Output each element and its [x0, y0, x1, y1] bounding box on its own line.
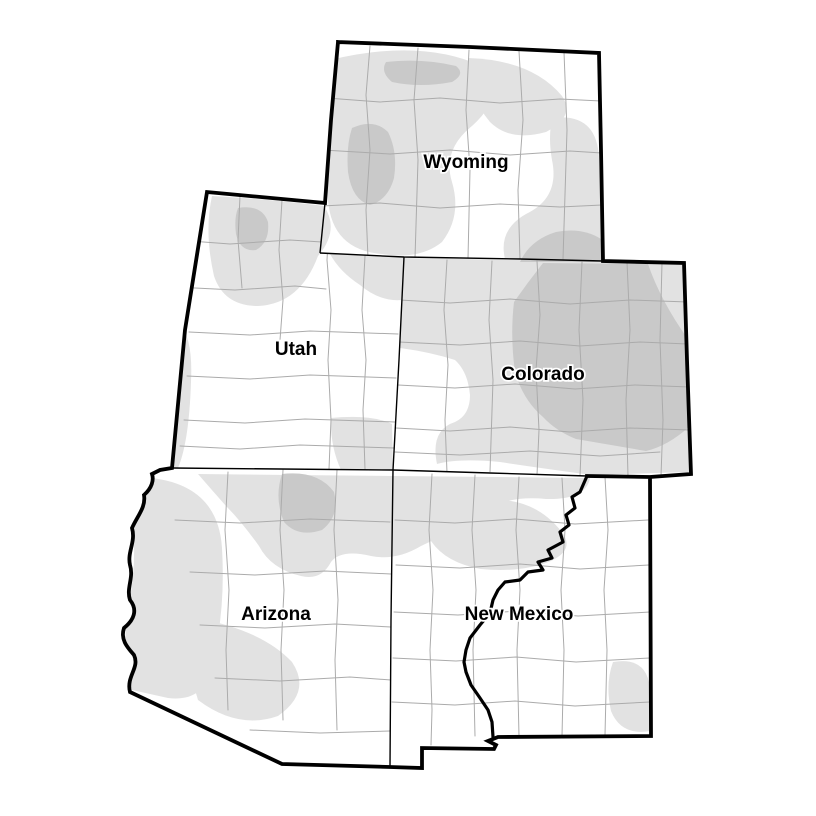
label-colorado: Colorado: [501, 364, 584, 385]
label-arizona: Arizona: [241, 604, 311, 625]
shade-southeast-newmexico: [608, 661, 650, 732]
label-new-mexico: New Mexico: [465, 604, 574, 625]
five-state-region-map: Wyoming Utah Colorado Arizona New Mexico: [0, 0, 816, 816]
label-utah: Utah: [275, 339, 317, 360]
label-wyoming: Wyoming: [423, 152, 508, 173]
map-canvas: Wyoming Utah Colorado Arizona New Mexico: [0, 0, 816, 816]
shade-fourcorners-utah: [331, 417, 393, 470]
shade-south-wyoming-border: [330, 254, 404, 300]
